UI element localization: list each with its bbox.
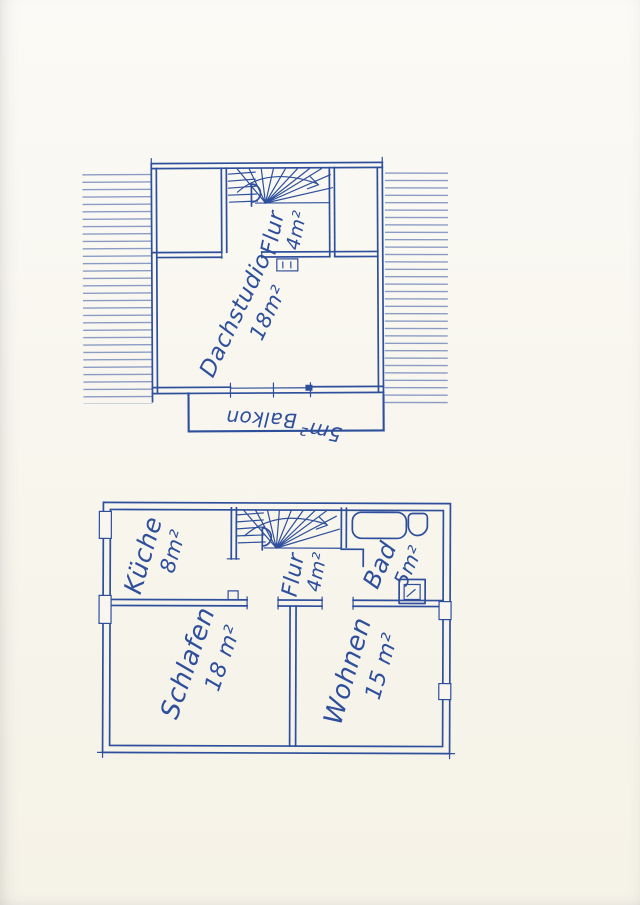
door-leaf-mark	[228, 591, 238, 600]
room-label-wohnen: Wohnen 15 m²	[318, 614, 405, 736]
roof-hatch-left	[82, 170, 152, 404]
room-label-flur-lower: Flur 4m²	[278, 546, 332, 602]
staircase-lower	[237, 510, 341, 550]
balcony: Balkon 5m²	[188, 392, 383, 448]
room-label-schlafen: Schlafen 18 m²	[155, 603, 249, 732]
room-name: Balkon	[225, 406, 297, 433]
floor-plan-drawing: Flur 4m² Dachstudio 18m² Balkon 5m²	[0, 0, 640, 905]
chimney-box	[277, 259, 298, 271]
lower-floor-plan: Küche 8m² Flur 4m² Bad 5m² Schlafen 18 m…	[98, 502, 456, 758]
room-label-bad: Bad 5m²	[357, 530, 427, 602]
upper-floor-plan: Flur 4m² Dachstudio 18m² Balkon 5m²	[82, 157, 449, 448]
washbasin	[408, 513, 427, 535]
roof-hatch-right	[385, 168, 448, 405]
room-label-balkon: Balkon 5m²	[225, 406, 345, 448]
room-label-kueche: Küche 8m²	[118, 513, 192, 604]
staircase-upper	[228, 169, 332, 207]
room-area: 5m²	[298, 416, 343, 447]
scanned-floor-plan-page: Flur 4m² Dachstudio 18m² Balkon 5m²	[0, 0, 640, 905]
door-hinge-mark	[305, 385, 312, 391]
bathtub	[352, 512, 406, 538]
